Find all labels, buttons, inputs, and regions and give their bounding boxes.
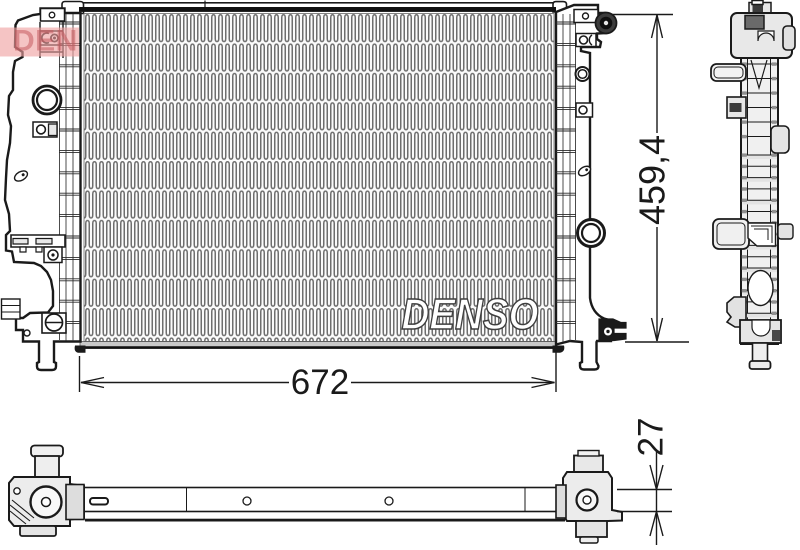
svg-text:672: 672 [291, 363, 349, 402]
svg-text:27: 27 [631, 418, 670, 457]
svg-text:459,4: 459,4 [632, 135, 673, 225]
svg-text:DENSO: DENSO [402, 290, 539, 339]
